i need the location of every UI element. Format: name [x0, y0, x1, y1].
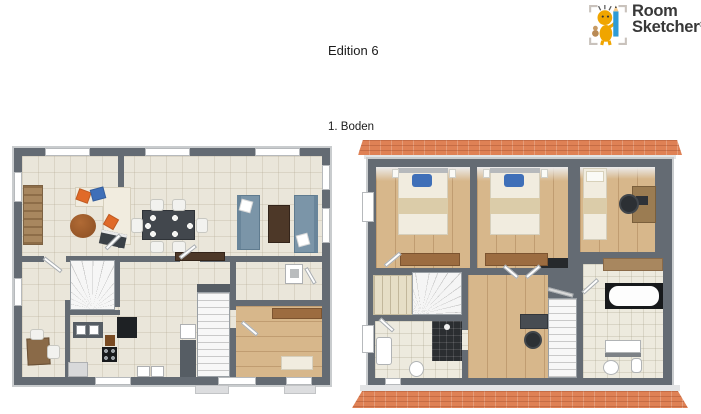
interior-wall [542, 268, 568, 275]
window [14, 278, 22, 306]
interior-wall [115, 260, 120, 307]
roof-top [358, 140, 682, 155]
window [145, 148, 190, 156]
appliance [180, 324, 196, 339]
dining-chair [150, 199, 164, 211]
window [362, 192, 374, 222]
sink-basin [89, 325, 99, 335]
fridge [117, 317, 137, 338]
brown-counter [603, 258, 663, 271]
vanity-base [605, 353, 641, 357]
washer [137, 366, 150, 377]
bathtub [605, 283, 663, 309]
interior-wall [577, 280, 583, 378]
bedroom-rug [400, 253, 460, 266]
office-chair [524, 331, 542, 349]
wardrobe-closet [373, 275, 412, 315]
headboard [398, 168, 448, 173]
dining-table [142, 210, 195, 240]
floor-plan-left [14, 148, 330, 385]
dining-chair [196, 218, 208, 233]
office-room-chair [47, 345, 60, 359]
interior-wall [570, 159, 579, 270]
window [322, 165, 330, 190]
window [385, 378, 401, 385]
interior-wall [376, 268, 385, 275]
entry-door-opening [286, 377, 312, 385]
interior-wall [477, 268, 504, 275]
interior-wall [462, 350, 468, 378]
toilet [409, 361, 424, 377]
bed-blanket [583, 198, 607, 214]
appliance-door [290, 269, 299, 278]
interior-wall [70, 310, 120, 315]
blue-bed-pillow [504, 174, 524, 187]
outside-step [195, 385, 229, 394]
office-chair [619, 194, 639, 214]
dryer [151, 366, 164, 377]
microwave [105, 335, 115, 346]
nightstand [449, 169, 456, 178]
bathroom-vanity [376, 337, 392, 365]
floor-plan-right [352, 140, 688, 408]
window [45, 148, 90, 156]
window [95, 377, 131, 385]
outside-step [284, 385, 316, 394]
window [218, 377, 256, 385]
staircase [548, 298, 577, 378]
bathtub-basin [609, 286, 659, 306]
staircase [197, 292, 230, 377]
toilet [603, 360, 619, 375]
stove [102, 347, 117, 362]
roomsketcher-mascot-icon [588, 4, 628, 51]
shower-head [444, 324, 450, 330]
window [255, 148, 300, 156]
tall-cabinet [180, 340, 196, 377]
window [362, 325, 374, 353]
window [14, 172, 22, 202]
window [322, 208, 330, 243]
nightstand [483, 169, 490, 178]
stair-landing-beam [197, 284, 230, 292]
wooden-sideboard [23, 185, 43, 245]
bathroom-vanity [605, 340, 641, 353]
blue-bed-pillow [412, 174, 432, 187]
roomsketcher-logo: Room Sketcher® [588, 4, 701, 51]
entry-bench [281, 356, 313, 370]
sink-basin [76, 325, 86, 335]
dining-chair [150, 241, 164, 253]
interior-wall [22, 256, 44, 262]
floor-label: 1. Boden [328, 121, 374, 133]
nightstand [392, 169, 399, 178]
winder-staircase [70, 260, 115, 310]
bed-blanket [490, 198, 540, 214]
dishwasher [68, 362, 88, 377]
interior-wall [470, 167, 477, 268]
dining-chair [131, 218, 143, 233]
roomsketcher-wordmark: Room Sketcher® [632, 4, 701, 35]
nightstand [541, 169, 548, 178]
hall-desk [520, 314, 548, 329]
entry-rug [272, 308, 322, 319]
interior-wall [462, 268, 468, 330]
roof-bottom [352, 391, 688, 408]
round-ottoman [70, 214, 96, 238]
dining-chair [172, 199, 186, 211]
edition-title: Edition 6 [328, 43, 379, 58]
roof-fascia [360, 385, 680, 391]
bidet [631, 358, 642, 373]
floor-plan-sheet: Edition 6 1. Boden Room Sketcher® [0, 0, 701, 414]
utility-appliance [285, 264, 303, 284]
winder-staircase [412, 272, 462, 315]
bed-blanket [398, 198, 448, 214]
office-room-chair [30, 329, 44, 340]
coffee-table [268, 205, 290, 243]
headboard [490, 168, 540, 173]
bed-pillow [586, 171, 604, 182]
logo-line2: Sketcher [632, 18, 699, 36]
